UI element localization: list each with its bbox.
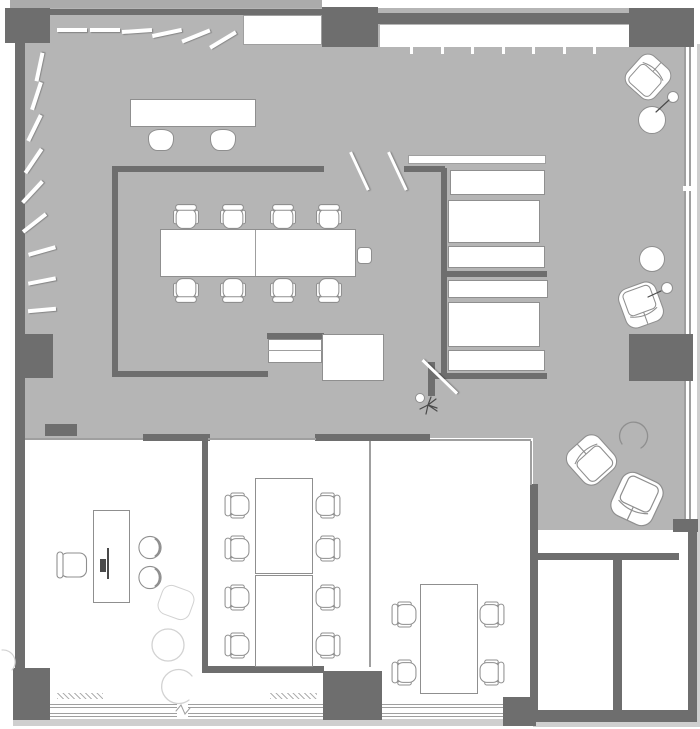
office-task-chair <box>55 549 89 581</box>
wall-se-corner-block <box>673 519 698 532</box>
wall-column-bottom-mid <box>323 671 382 720</box>
conference-table <box>160 229 356 277</box>
task-chair <box>224 533 251 563</box>
reception-stool-1 <box>148 129 174 151</box>
conference-chair <box>218 277 248 304</box>
storage-counter <box>408 155 546 164</box>
conference-chair-glyph <box>171 203 201 230</box>
task-chair-glyph <box>315 533 342 563</box>
task-chair-glyph <box>315 490 342 520</box>
partition-se-edge <box>530 441 532 485</box>
wall-meeting-left <box>112 166 118 377</box>
wall-storage-mid <box>443 271 547 277</box>
task-chair-glyph <box>315 630 342 660</box>
wall-meeting-bottom <box>112 371 268 377</box>
wall-se-left <box>530 484 538 712</box>
meeting-chair-glyph <box>391 657 418 687</box>
meeting-chair <box>479 599 506 629</box>
window-top-mullions <box>410 45 413 54</box>
wall-column-top-left <box>5 8 50 43</box>
meeting-chair-glyph <box>391 599 418 629</box>
wall-block-top-mid <box>322 7 378 47</box>
side-table-round-e <box>639 246 665 272</box>
office-desk <box>93 510 130 603</box>
wall-se-bottom <box>533 710 697 722</box>
wall-column-right-mid <box>629 334 693 381</box>
wall-top-b <box>376 13 632 24</box>
guest-chair-2-glyph <box>137 562 164 592</box>
workbench-table-1 <box>255 478 313 574</box>
corridor-floor-se <box>538 530 688 553</box>
window-top-mullions <box>441 45 444 54</box>
wall-meeting-top <box>112 166 324 172</box>
plinth-strip-top <box>10 0 322 8</box>
storage-shelf-3 <box>448 246 545 268</box>
window-top-mullions <box>471 45 474 54</box>
office-task-chair-glyph <box>55 549 89 581</box>
wall-lower-top-1 <box>143 434 210 441</box>
guest-chair-2 <box>137 562 164 592</box>
shadow-strip-bottom-right <box>533 722 700 727</box>
glass-front-office <box>25 438 143 440</box>
storage-cabinet-large <box>322 334 384 381</box>
floor-lamp-ne <box>667 91 679 103</box>
credenza-shelf-line <box>268 350 322 351</box>
wall-column-left-mid <box>15 334 53 378</box>
side-table-square <box>357 247 372 264</box>
task-chair <box>315 533 342 563</box>
wall-meeting-stub <box>404 166 445 172</box>
wall-niche <box>243 15 322 45</box>
window-top-mullions <box>593 45 596 54</box>
meeting-chair <box>391 599 418 629</box>
glass-right-mullion <box>683 186 691 191</box>
storage-shelf-4 <box>448 280 548 298</box>
task-chair <box>315 490 342 520</box>
window-bottom-right-1 <box>382 704 503 705</box>
threshold-hatch-1 <box>57 693 103 699</box>
glass-wall-right-line-outer <box>689 47 691 522</box>
window-top-band <box>380 25 630 47</box>
wall-lower-top-2 <box>315 434 430 441</box>
window-bottom-right-4 <box>382 716 503 717</box>
desk-monitor <box>107 548 109 579</box>
storage-shelf-2 <box>448 200 540 243</box>
glass-wall-right-line-inner <box>684 47 686 522</box>
meeting-chair <box>391 657 418 687</box>
task-chair-glyph <box>224 630 251 660</box>
task-chair <box>224 630 251 660</box>
wall-se-divider <box>613 554 622 712</box>
partition-center-right <box>369 441 371 667</box>
guest-chair-1-glyph <box>137 532 164 562</box>
conference-chair-glyph <box>314 203 344 230</box>
storage-shelf-5 <box>448 302 540 347</box>
conference-chair <box>171 203 201 230</box>
floor-lamp-e <box>661 282 673 294</box>
window-bottom-right-3 <box>382 713 503 714</box>
conference-chair <box>171 277 201 304</box>
ceiling-louver <box>90 28 120 32</box>
conference-chair-glyph <box>268 277 298 304</box>
storage-shelf-1 <box>450 170 545 195</box>
workbench-table-2 <box>255 575 313 667</box>
side-table-round-ne <box>638 106 666 134</box>
conference-chair-glyph <box>171 277 201 304</box>
glass-front-right <box>430 439 531 441</box>
pouf-arc <box>162 670 192 704</box>
task-chair-glyph <box>224 582 251 612</box>
storage-shelf-6 <box>448 350 545 371</box>
wall-office-right <box>202 436 208 673</box>
window-top-mullions <box>502 45 505 54</box>
conference-chair-glyph <box>314 277 344 304</box>
glass-front-center <box>208 438 316 440</box>
credenza <box>268 339 322 363</box>
task-chair <box>315 582 342 612</box>
task-chair-glyph <box>224 490 251 520</box>
conference-chair <box>314 277 344 304</box>
wall-se-right <box>688 531 697 722</box>
wall-center-bottom <box>202 666 324 673</box>
shadow-strip-bottom <box>13 719 536 726</box>
meeting-table-small <box>420 584 478 694</box>
wall-top-a <box>48 9 324 15</box>
conference-chair-glyph <box>218 203 248 230</box>
conference-chair <box>314 203 344 230</box>
reception-stool-2 <box>210 129 236 151</box>
floor-plan <box>0 0 700 729</box>
task-chair <box>315 630 342 660</box>
reception-counter <box>130 99 256 127</box>
wall-se-corridor-bottom <box>533 553 679 560</box>
conference-chair-glyph <box>218 277 248 304</box>
conference-table-divider <box>255 230 256 276</box>
wall-column-top-right <box>629 8 694 47</box>
task-chair <box>224 582 251 612</box>
plant-pot <box>415 393 425 403</box>
desk-keyboard <box>100 559 106 572</box>
conference-chair-glyph <box>268 203 298 230</box>
meeting-chair-glyph <box>479 599 506 629</box>
wall-column-bottom-left <box>13 668 50 720</box>
conference-chair <box>268 203 298 230</box>
guest-chair-1 <box>137 532 164 562</box>
window-top-mullions <box>563 45 566 54</box>
task-chair <box>224 490 251 520</box>
meeting-chair <box>479 657 506 687</box>
pouf-edge <box>2 650 15 670</box>
meeting-chair-glyph <box>479 657 506 687</box>
task-chair-glyph <box>224 533 251 563</box>
window-top-mullions <box>532 45 535 54</box>
pouf-round <box>152 629 184 661</box>
threshold-hatch-2 <box>270 693 317 699</box>
window-bottom-right-2 <box>382 707 503 708</box>
conference-chair <box>268 277 298 304</box>
conference-chair <box>218 203 248 230</box>
task-chair-glyph <box>315 582 342 612</box>
window-break <box>177 701 188 719</box>
ceiling-louver <box>57 28 87 32</box>
wall-column-lower-left <box>45 424 77 436</box>
wall-storage-bottom <box>430 373 547 379</box>
